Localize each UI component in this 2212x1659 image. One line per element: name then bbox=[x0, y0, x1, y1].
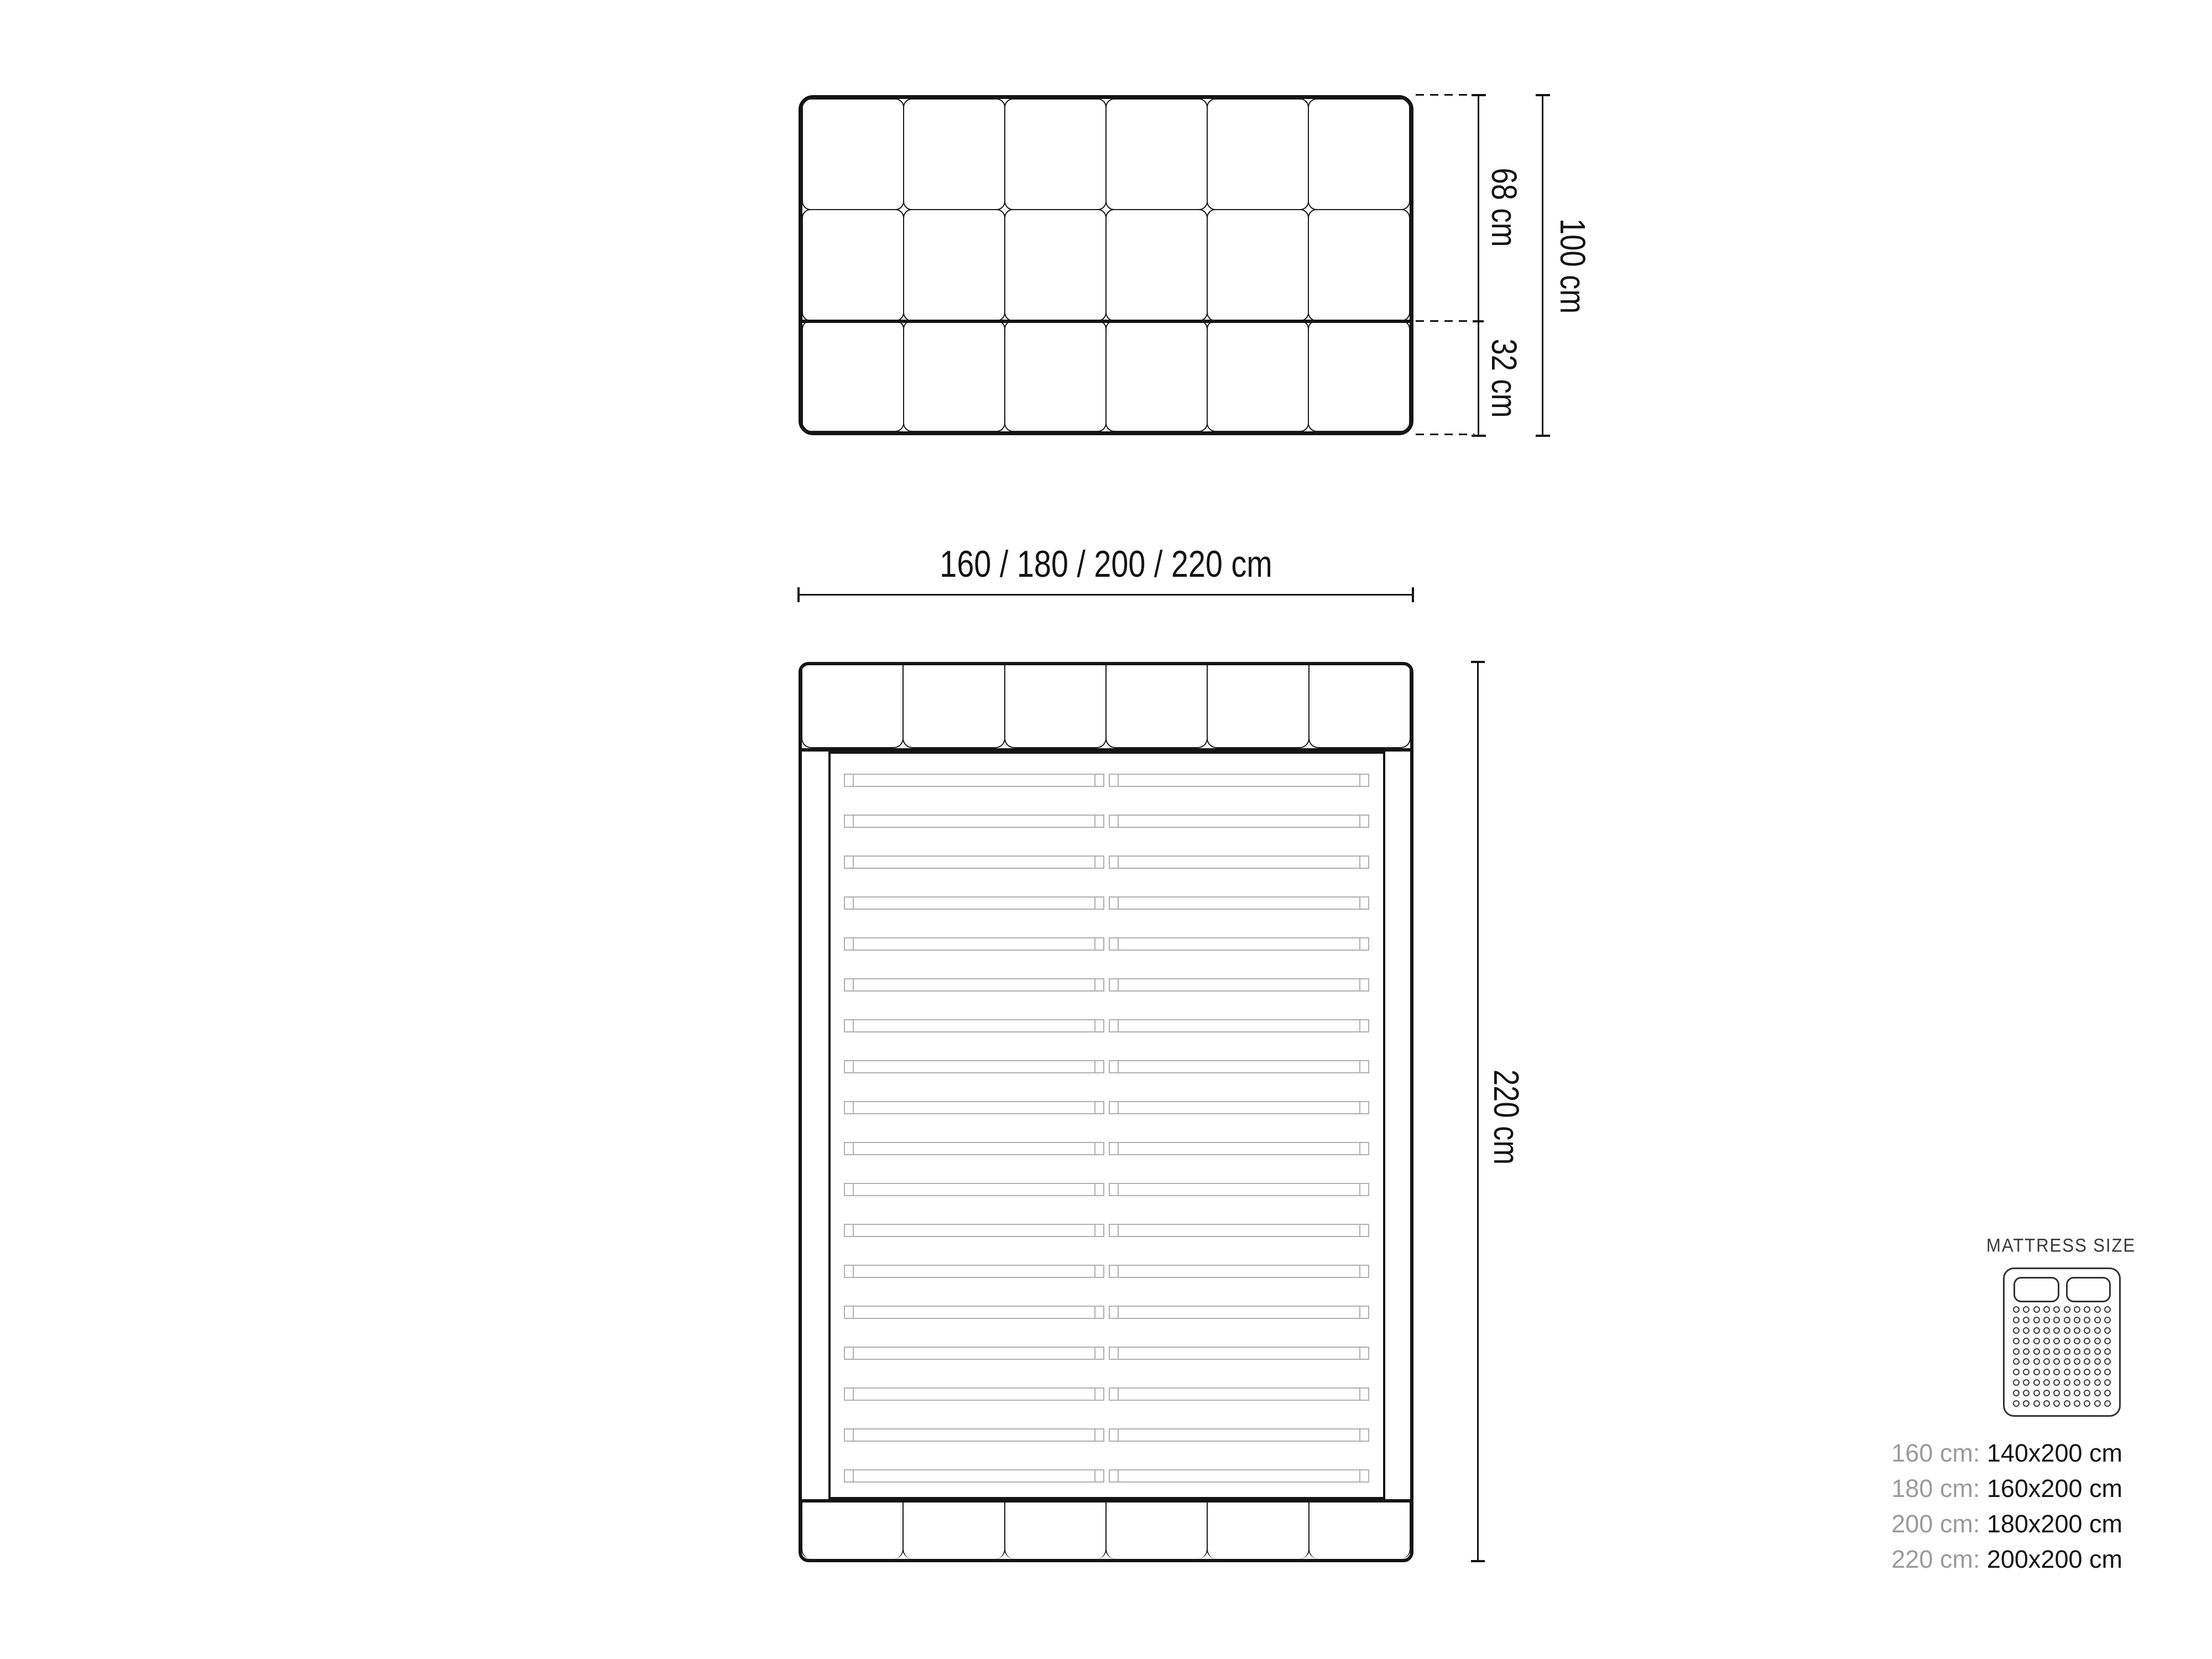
footboard-strip bbox=[802, 1499, 1410, 1559]
headboard-panel bbox=[1308, 98, 1410, 210]
dim-label-width: 160 / 180 / 200 / 220 cm bbox=[940, 542, 1272, 586]
dim-line-100 bbox=[1542, 95, 1543, 437]
tuft-dot bbox=[2084, 1317, 2090, 1323]
tuft-dot bbox=[2064, 1338, 2070, 1344]
tuft-dot bbox=[2053, 1348, 2060, 1355]
tuft-dot bbox=[2043, 1400, 2050, 1407]
headboard-panel bbox=[802, 320, 904, 432]
headboard-panel bbox=[903, 209, 1005, 321]
tuft-dot bbox=[2094, 1369, 2101, 1375]
tuft-dot bbox=[2013, 1400, 2020, 1407]
tuft-dot bbox=[2043, 1379, 2050, 1386]
slat-left-half bbox=[844, 1142, 1104, 1155]
frame-size-label: 160 cm: bbox=[1891, 1439, 1980, 1467]
tuft-dot bbox=[2094, 1306, 2101, 1313]
bed-slat bbox=[844, 896, 1369, 910]
slat-left-half bbox=[844, 937, 1104, 951]
tuft-dot bbox=[2013, 1348, 2020, 1355]
tuft-dot bbox=[2104, 1379, 2111, 1386]
extension-line-bottom bbox=[1416, 434, 1474, 435]
headboard-panel bbox=[1308, 320, 1410, 432]
mattress-size-list: 160 cm: 140x200 cm180 cm: 160x200 cm200 … bbox=[1891, 1436, 2122, 1577]
slat-left-half bbox=[844, 1265, 1104, 1278]
tuft-dot bbox=[2074, 1358, 2080, 1365]
tuft-dot bbox=[2104, 1317, 2111, 1323]
tuft-dot bbox=[2074, 1400, 2080, 1407]
tuft-dot bbox=[2064, 1358, 2070, 1365]
tuft-dot bbox=[2043, 1369, 2050, 1375]
tuft-dot bbox=[2033, 1317, 2040, 1323]
bed-plan-view bbox=[799, 662, 1413, 1562]
tuft-dot bbox=[2053, 1338, 2060, 1344]
pillow-icon bbox=[2013, 1277, 2059, 1302]
tuft-dot bbox=[2013, 1358, 2020, 1365]
tuft-dot bbox=[2094, 1327, 2101, 1334]
tuft-dot bbox=[2094, 1390, 2101, 1396]
dim-label-220cm: 220 cm bbox=[1486, 1070, 1527, 1165]
mattress-size-row: 200 cm: 180x200 cm bbox=[1891, 1506, 2122, 1542]
tuft-dot bbox=[2043, 1390, 2050, 1396]
slat-platform bbox=[828, 752, 1385, 1499]
tuft-dot bbox=[2013, 1338, 2020, 1344]
tuft-dot bbox=[2023, 1306, 2030, 1313]
tuft-dot bbox=[2053, 1390, 2060, 1396]
bed-slat bbox=[844, 1387, 1369, 1401]
tuft-dot bbox=[2074, 1369, 2080, 1375]
tuft-dot bbox=[2013, 1379, 2020, 1386]
tuft-dot bbox=[2064, 1327, 2070, 1334]
tuft-dot bbox=[2074, 1327, 2080, 1334]
tuft-dot bbox=[2104, 1348, 2111, 1355]
slat-area bbox=[831, 754, 1383, 1497]
slat-left-half bbox=[844, 1428, 1104, 1442]
upholstery-segment bbox=[1105, 1503, 1208, 1559]
frame-size-label: 220 cm: bbox=[1891, 1545, 1980, 1573]
tuft-dot bbox=[2074, 1390, 2080, 1396]
tuft-dot bbox=[2084, 1390, 2090, 1396]
bed-slat bbox=[844, 1347, 1369, 1360]
dim-label-68cm: 68 cm bbox=[1484, 168, 1525, 247]
tuft-dot bbox=[2053, 1317, 2060, 1323]
slat-right-half bbox=[1109, 896, 1369, 910]
tuft-dot bbox=[2053, 1379, 2060, 1386]
slat-right-half bbox=[1109, 978, 1369, 992]
headboard-panel bbox=[1105, 320, 1208, 432]
tuft-dot bbox=[2064, 1317, 2070, 1323]
tuft-dot bbox=[2053, 1358, 2060, 1365]
tuft-dot bbox=[2053, 1306, 2060, 1313]
tuft-dot bbox=[2064, 1400, 2070, 1407]
headboard-panel bbox=[802, 98, 904, 210]
tuft-dot bbox=[2064, 1379, 2070, 1386]
mattress-size-value: 200x200 cm bbox=[1980, 1545, 2122, 1573]
tuft-dot bbox=[2084, 1358, 2090, 1365]
bed-slat bbox=[844, 1142, 1369, 1155]
slat-right-half bbox=[1109, 1347, 1369, 1360]
upholstery-segment bbox=[902, 1503, 1005, 1559]
bed-slat bbox=[844, 774, 1369, 787]
bed-slat bbox=[844, 937, 1369, 951]
tuft-dot bbox=[2104, 1306, 2111, 1313]
tuft-dot bbox=[2074, 1379, 2080, 1386]
slat-left-half bbox=[844, 978, 1104, 992]
tuft-dot bbox=[2064, 1369, 2070, 1375]
bed-slat bbox=[844, 1224, 1369, 1237]
headboard-panel bbox=[1004, 209, 1107, 321]
bed-slat bbox=[844, 1019, 1369, 1032]
slat-right-half bbox=[1109, 937, 1369, 951]
tuft-dot bbox=[2084, 1306, 2090, 1313]
slat-right-half bbox=[1109, 1019, 1369, 1032]
tuft-dot bbox=[2084, 1400, 2090, 1407]
tuft-dot bbox=[2013, 1317, 2020, 1323]
slat-left-half bbox=[844, 774, 1104, 787]
tuft-dot bbox=[2023, 1338, 2030, 1344]
dim-tick bbox=[1412, 587, 1414, 602]
tuft-dot bbox=[2013, 1327, 2020, 1334]
slat-left-half bbox=[844, 1224, 1104, 1237]
tuft-dot bbox=[2053, 1327, 2060, 1334]
tuft-dot bbox=[2043, 1358, 2050, 1365]
headboard-panel bbox=[1207, 98, 1309, 210]
slat-left-half bbox=[844, 1019, 1104, 1032]
upholstery-segment bbox=[1308, 1503, 1411, 1559]
dim-tick bbox=[1473, 320, 1484, 322]
tuft-dot bbox=[2033, 1338, 2040, 1344]
tuft-dot bbox=[2104, 1338, 2111, 1344]
tuft-dot bbox=[2074, 1338, 2080, 1344]
tuft-dot bbox=[2013, 1306, 2020, 1313]
slat-right-half bbox=[1109, 1060, 1369, 1073]
headboard-panel bbox=[1308, 209, 1410, 321]
tuft-dot bbox=[2064, 1306, 2070, 1313]
upholstery-segment bbox=[801, 1503, 904, 1559]
tuft-dot bbox=[2104, 1390, 2111, 1396]
dim-tick bbox=[1472, 94, 1486, 96]
tuft-dot bbox=[2013, 1390, 2020, 1396]
tuft-dot bbox=[2094, 1400, 2101, 1407]
tuft-dot bbox=[2023, 1348, 2030, 1355]
tuft-dot bbox=[2043, 1306, 2050, 1313]
upholstery-segment bbox=[1105, 665, 1208, 748]
tuft-dot bbox=[2064, 1348, 2070, 1355]
dim-tick bbox=[1472, 435, 1486, 437]
slat-right-half bbox=[1109, 1142, 1369, 1155]
frame-size-label: 180 cm: bbox=[1891, 1474, 1980, 1503]
dim-line-220 bbox=[1477, 662, 1479, 1562]
slat-right-half bbox=[1109, 1224, 1369, 1237]
tuft-dot bbox=[2033, 1306, 2040, 1313]
tuft-dot bbox=[2043, 1327, 2050, 1334]
tuft-dot bbox=[2064, 1390, 2070, 1396]
tuft-dot bbox=[2033, 1379, 2040, 1386]
tuft-dot bbox=[2023, 1369, 2030, 1375]
tuft-dot bbox=[2084, 1327, 2090, 1334]
tuft-dot bbox=[2053, 1400, 2060, 1407]
tuft-dot bbox=[2023, 1317, 2030, 1323]
tuft-dot bbox=[2033, 1369, 2040, 1375]
headboard-front-view bbox=[799, 95, 1413, 435]
tuft-dot bbox=[2104, 1358, 2111, 1365]
slat-left-half bbox=[844, 1387, 1104, 1401]
bed-slat bbox=[844, 1469, 1369, 1483]
tuft-dot bbox=[2023, 1400, 2030, 1407]
bed-slat bbox=[844, 815, 1369, 828]
slat-right-half bbox=[1109, 1265, 1369, 1278]
dim-tick bbox=[797, 587, 800, 602]
tuft-dot bbox=[2023, 1379, 2030, 1386]
tuft-dot bbox=[2053, 1369, 2060, 1375]
slat-left-half bbox=[844, 1101, 1104, 1114]
slat-right-half bbox=[1109, 815, 1369, 828]
tuft-dot bbox=[2033, 1358, 2040, 1365]
upholstery-segment bbox=[1308, 665, 1411, 748]
headboard-panel bbox=[1105, 98, 1208, 210]
headboard-panel bbox=[1207, 209, 1309, 321]
slat-left-half bbox=[844, 1183, 1104, 1196]
tuft-dot bbox=[2094, 1317, 2101, 1323]
headboard-panel-grid bbox=[802, 99, 1410, 431]
bed-slat bbox=[844, 1060, 1369, 1073]
tuft-dot bbox=[2033, 1390, 2040, 1396]
slat-left-half bbox=[844, 1060, 1104, 1073]
slat-right-half bbox=[1109, 1101, 1369, 1114]
dim-tick bbox=[1536, 94, 1550, 96]
mattress-size-row: 220 cm: 200x200 cm bbox=[1891, 1542, 2122, 1577]
upholstery-segment bbox=[801, 665, 904, 748]
bed-slat bbox=[844, 1101, 1369, 1114]
tuft-dot bbox=[2033, 1400, 2040, 1407]
dim-tick bbox=[1471, 661, 1485, 663]
bed-slat bbox=[844, 1428, 1369, 1442]
mattress-size-value: 180x200 cm bbox=[1980, 1510, 2122, 1538]
headboard-panel bbox=[903, 98, 1005, 210]
tuft-dot bbox=[2094, 1338, 2101, 1344]
headboard-strip bbox=[802, 665, 1410, 752]
headboard-panel bbox=[1004, 320, 1107, 432]
legend-title: MATTRESS SIZE bbox=[1986, 1235, 2136, 1257]
slat-right-half bbox=[1109, 1387, 1369, 1401]
bed-slat bbox=[844, 978, 1369, 992]
slat-left-half bbox=[844, 1306, 1104, 1319]
tuft-dot bbox=[2094, 1358, 2101, 1365]
upholstery-segment bbox=[1004, 1503, 1107, 1559]
upholstery-segment bbox=[1004, 665, 1107, 748]
tuft-dot bbox=[2023, 1327, 2030, 1334]
bed-slat bbox=[844, 1265, 1369, 1278]
dim-label-32cm: 32 cm bbox=[1484, 339, 1525, 418]
tuft-dot bbox=[2043, 1338, 2050, 1344]
tuft-dot bbox=[2084, 1338, 2090, 1344]
tuft-dot bbox=[2104, 1327, 2111, 1334]
tuft-dot bbox=[2043, 1348, 2050, 1355]
mattress-size-value: 140x200 cm bbox=[1980, 1439, 2122, 1467]
tuft-dot bbox=[2074, 1306, 2080, 1313]
slat-right-half bbox=[1109, 1428, 1369, 1442]
mattress-tuft-dots bbox=[2011, 1305, 2112, 1408]
bed-technical-drawing: 68 cm 32 cm 100 cm 160 / 180 / 200 / 220… bbox=[0, 0, 2212, 1659]
headboard-panel bbox=[903, 320, 1005, 432]
dim-label-100cm: 100 cm bbox=[1552, 218, 1593, 314]
upholstery-segment bbox=[902, 665, 1005, 748]
upholstery-segment bbox=[1207, 665, 1309, 748]
extension-line-top bbox=[1416, 94, 1474, 96]
tuft-dot bbox=[2084, 1348, 2090, 1355]
tuft-dot bbox=[2033, 1327, 2040, 1334]
tuft-dot bbox=[2094, 1379, 2101, 1386]
dim-line-68-32 bbox=[1478, 95, 1479, 437]
slat-left-half bbox=[844, 1347, 1104, 1360]
slat-right-half bbox=[1109, 1306, 1369, 1319]
mattress-size-row: 180 cm: 160x200 cm bbox=[1891, 1471, 2122, 1506]
slat-right-half bbox=[1109, 1469, 1369, 1483]
mattress-icon bbox=[2003, 1267, 2121, 1417]
headboard-panel bbox=[1105, 209, 1208, 321]
headboard-panel bbox=[1207, 320, 1309, 432]
tuft-dot bbox=[2074, 1348, 2080, 1355]
tuft-dot bbox=[2023, 1358, 2030, 1365]
slat-left-half bbox=[844, 896, 1104, 910]
slat-left-half bbox=[844, 815, 1104, 828]
upholstery-segment bbox=[1207, 1503, 1309, 1559]
headboard-base-divider bbox=[799, 320, 1413, 323]
tuft-dot bbox=[2104, 1400, 2111, 1407]
frame-size-label: 200 cm: bbox=[1891, 1510, 1980, 1538]
mattress-size-value: 160x200 cm bbox=[1980, 1474, 2122, 1503]
tuft-dot bbox=[2013, 1369, 2020, 1375]
headboard-panel bbox=[802, 209, 904, 321]
slat-left-half bbox=[844, 1469, 1104, 1483]
slat-right-half bbox=[1109, 855, 1369, 869]
tuft-dot bbox=[2043, 1317, 2050, 1323]
dim-line-width bbox=[799, 594, 1413, 596]
tuft-dot bbox=[2084, 1379, 2090, 1386]
extension-line-mid bbox=[1416, 320, 1474, 322]
headboard-panel bbox=[1004, 98, 1107, 210]
tuft-dot bbox=[2074, 1317, 2080, 1323]
slat-right-half bbox=[1109, 774, 1369, 787]
tuft-dot bbox=[2084, 1369, 2090, 1375]
tuft-dot bbox=[2104, 1369, 2111, 1375]
mattress-size-row: 160 cm: 140x200 cm bbox=[1891, 1436, 2122, 1471]
bed-slat bbox=[844, 855, 1369, 869]
bed-slat bbox=[844, 1183, 1369, 1196]
dim-tick bbox=[1471, 1560, 1485, 1562]
slat-right-half bbox=[1109, 1183, 1369, 1196]
tuft-dot bbox=[2023, 1390, 2030, 1396]
slat-left-half bbox=[844, 855, 1104, 869]
tuft-dot bbox=[2033, 1348, 2040, 1355]
pillow-icon bbox=[2066, 1277, 2111, 1302]
tuft-dot bbox=[2094, 1348, 2101, 1355]
bed-slat bbox=[844, 1306, 1369, 1319]
dim-tick bbox=[1536, 435, 1550, 437]
